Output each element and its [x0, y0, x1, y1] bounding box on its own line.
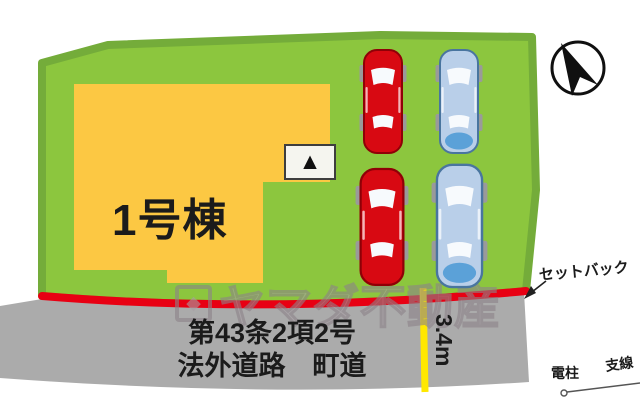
site-plan: ◆ ヤマダ不動産 [0, 0, 640, 402]
utility-pole-label: 電柱 [551, 363, 579, 383]
road-name-line2: 法外道路 町道 [163, 350, 381, 383]
guy-wire-label: 支線 [604, 352, 635, 376]
entrance-direction-icon: ▲ [299, 148, 322, 174]
road-name-line1: 第43条2項2号 [163, 317, 381, 350]
road-width-label: 3.4m [430, 314, 457, 366]
entrance-direction-marker: ▲ [284, 144, 336, 180]
car-blue-row1 [436, 50, 483, 153]
car-red-row1 [360, 50, 407, 153]
building-label: 1号棟 [112, 184, 227, 248]
car-blue-row2 [432, 165, 488, 287]
car-red-row2 [356, 169, 409, 285]
